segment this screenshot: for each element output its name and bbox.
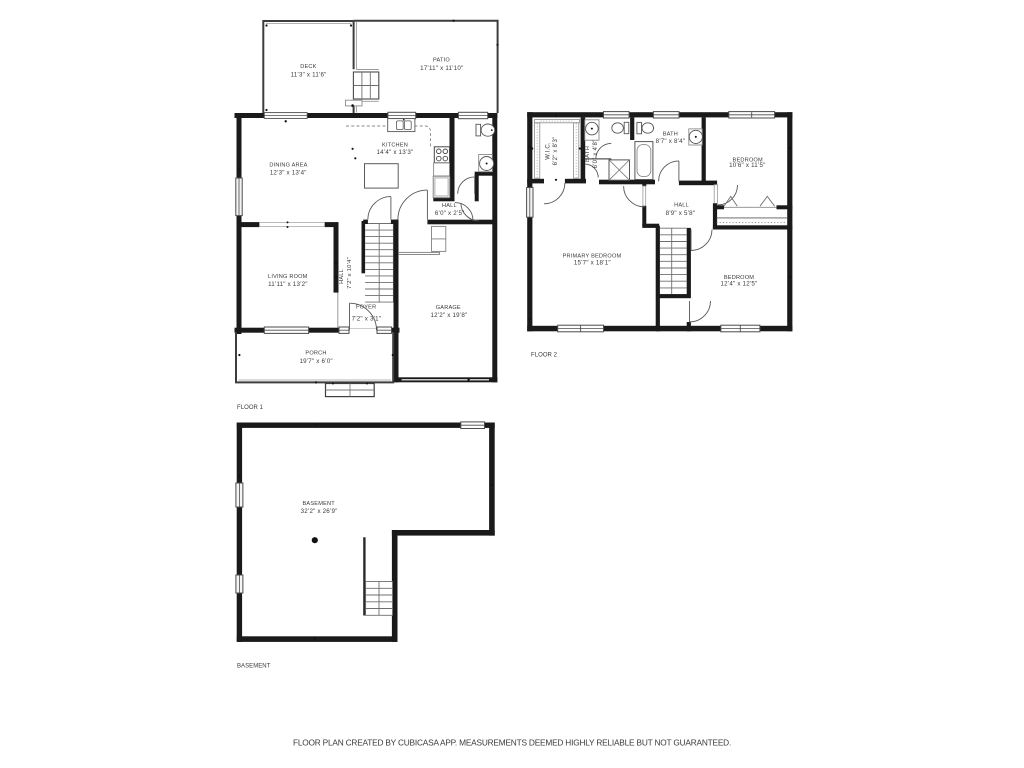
svg-text:FLOOR PLAN CREATED BY CUBICASA: FLOOR PLAN CREATED BY CUBICASA APP. MEAS… (293, 738, 731, 748)
svg-text:12’4" x 12’5": 12’4" x 12’5" (721, 281, 758, 288)
svg-text:GARAGE: GARAGE (436, 305, 461, 311)
svg-text:11’3" x 11’6": 11’3" x 11’6" (291, 71, 327, 78)
svg-text:FLOOR 2: FLOOR 2 (531, 352, 558, 358)
svg-text:7’2" x 3’1": 7’2" x 3’1" (352, 315, 382, 322)
svg-text:19’7" x 6’0": 19’7" x 6’0" (299, 358, 332, 365)
svg-text:12’2" x 19’8": 12’2" x 19’8" (430, 312, 467, 319)
svg-text:11’11" x 13’2": 11’11" x 13’2" (268, 281, 308, 288)
svg-text:HALL: HALL (442, 203, 457, 209)
svg-text:DECK: DECK (300, 64, 316, 70)
svg-text:6’2" x 8’3": 6’2" x 8’3" (553, 137, 559, 166)
svg-text:12’3" x 13’4": 12’3" x 13’4" (270, 170, 307, 177)
svg-text:15’7" x 18’1": 15’7" x 18’1" (574, 260, 611, 267)
svg-text:8’9" x 5’8": 8’9" x 5’8" (666, 210, 696, 217)
svg-text:FOYER: FOYER (356, 304, 376, 310)
svg-text:8’7" x 8’4": 8’7" x 8’4" (656, 138, 686, 145)
svg-text:32’2" x 26’9": 32’2" x 26’9" (301, 508, 338, 515)
svg-text:BASEMENT: BASEMENT (237, 664, 271, 670)
svg-text:6’0" x 2’5": 6’0" x 2’5" (435, 210, 465, 217)
svg-text:W.I.C.: W.I.C. (545, 142, 551, 160)
svg-text:LIVING ROOM: LIVING ROOM (268, 274, 308, 280)
svg-text:7’2" x 10’4": 7’2" x 10’4" (347, 257, 353, 289)
svg-text:6’0" x 4’8": 6’0" x 4’8" (593, 140, 599, 169)
svg-text:BASEMENT: BASEMENT (303, 501, 336, 507)
svg-text:17’11" x 11’10": 17’11" x 11’10" (420, 65, 463, 72)
svg-text:HALL: HALL (674, 202, 689, 208)
svg-text:HALL: HALL (339, 269, 345, 284)
svg-text:DINING AREA: DINING AREA (269, 163, 307, 169)
svg-text:PATIO: PATIO (433, 58, 450, 64)
svg-text:BATH: BATH (663, 131, 678, 137)
svg-text:KITCHEN: KITCHEN (382, 143, 408, 149)
svg-text:14’4" x 13’3": 14’4" x 13’3" (377, 149, 414, 156)
svg-text:BATH: BATH (585, 146, 591, 162)
svg-text:PORCH: PORCH (305, 351, 326, 357)
svg-text:10’6" x 11’5": 10’6" x 11’5" (729, 162, 765, 169)
svg-text:FLOOR 1: FLOOR 1 (237, 405, 264, 411)
